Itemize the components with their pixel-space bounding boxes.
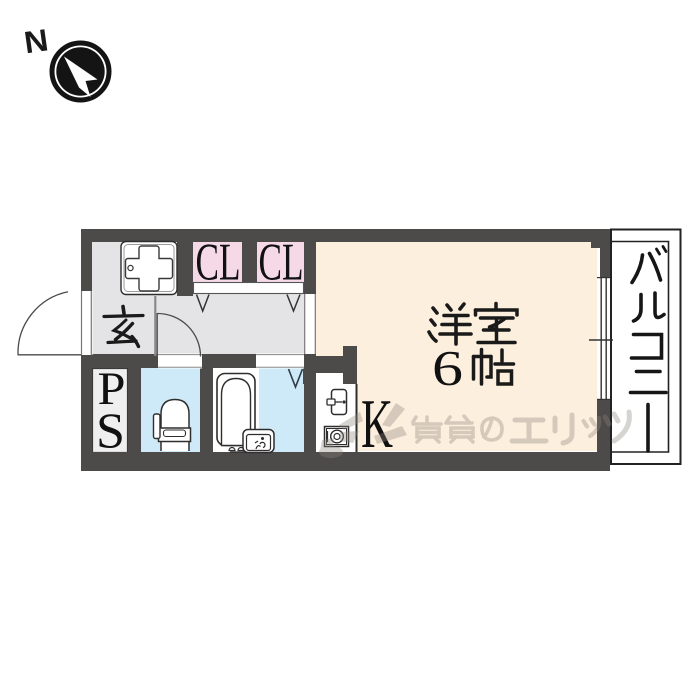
svg-text:S: S	[96, 402, 125, 458]
svg-text:N: N	[22, 22, 51, 60]
svg-text:6: 6	[432, 340, 463, 396]
